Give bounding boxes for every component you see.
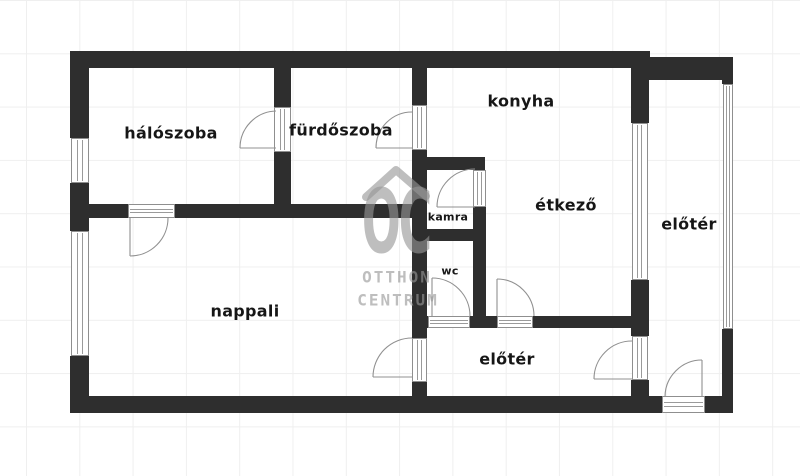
room-label-furdoszoba: fürdőszoba — [289, 121, 393, 140]
floor-plan: OC OTTHON CENTRUM hálószobafürdőszobakon… — [0, 0, 800, 476]
room-label-etkezo: étkező — [535, 196, 597, 215]
watermark-text-centrum: CENTRUM — [357, 291, 438, 310]
room-label-wc: wc — [441, 265, 458, 278]
watermark-monogram: OC — [362, 170, 430, 273]
room-label-eloter-jobb: előtér — [661, 215, 717, 234]
room-label-eloter-also: előtér — [479, 350, 535, 369]
room-label-kamra: kamra — [428, 211, 469, 224]
room-label-nappali: nappali — [211, 302, 280, 321]
room-label-haloszoba: hálószoba — [124, 124, 217, 143]
watermark-text-otthon: OTTHON — [362, 268, 432, 287]
room-label-konyha: konyha — [487, 92, 554, 111]
